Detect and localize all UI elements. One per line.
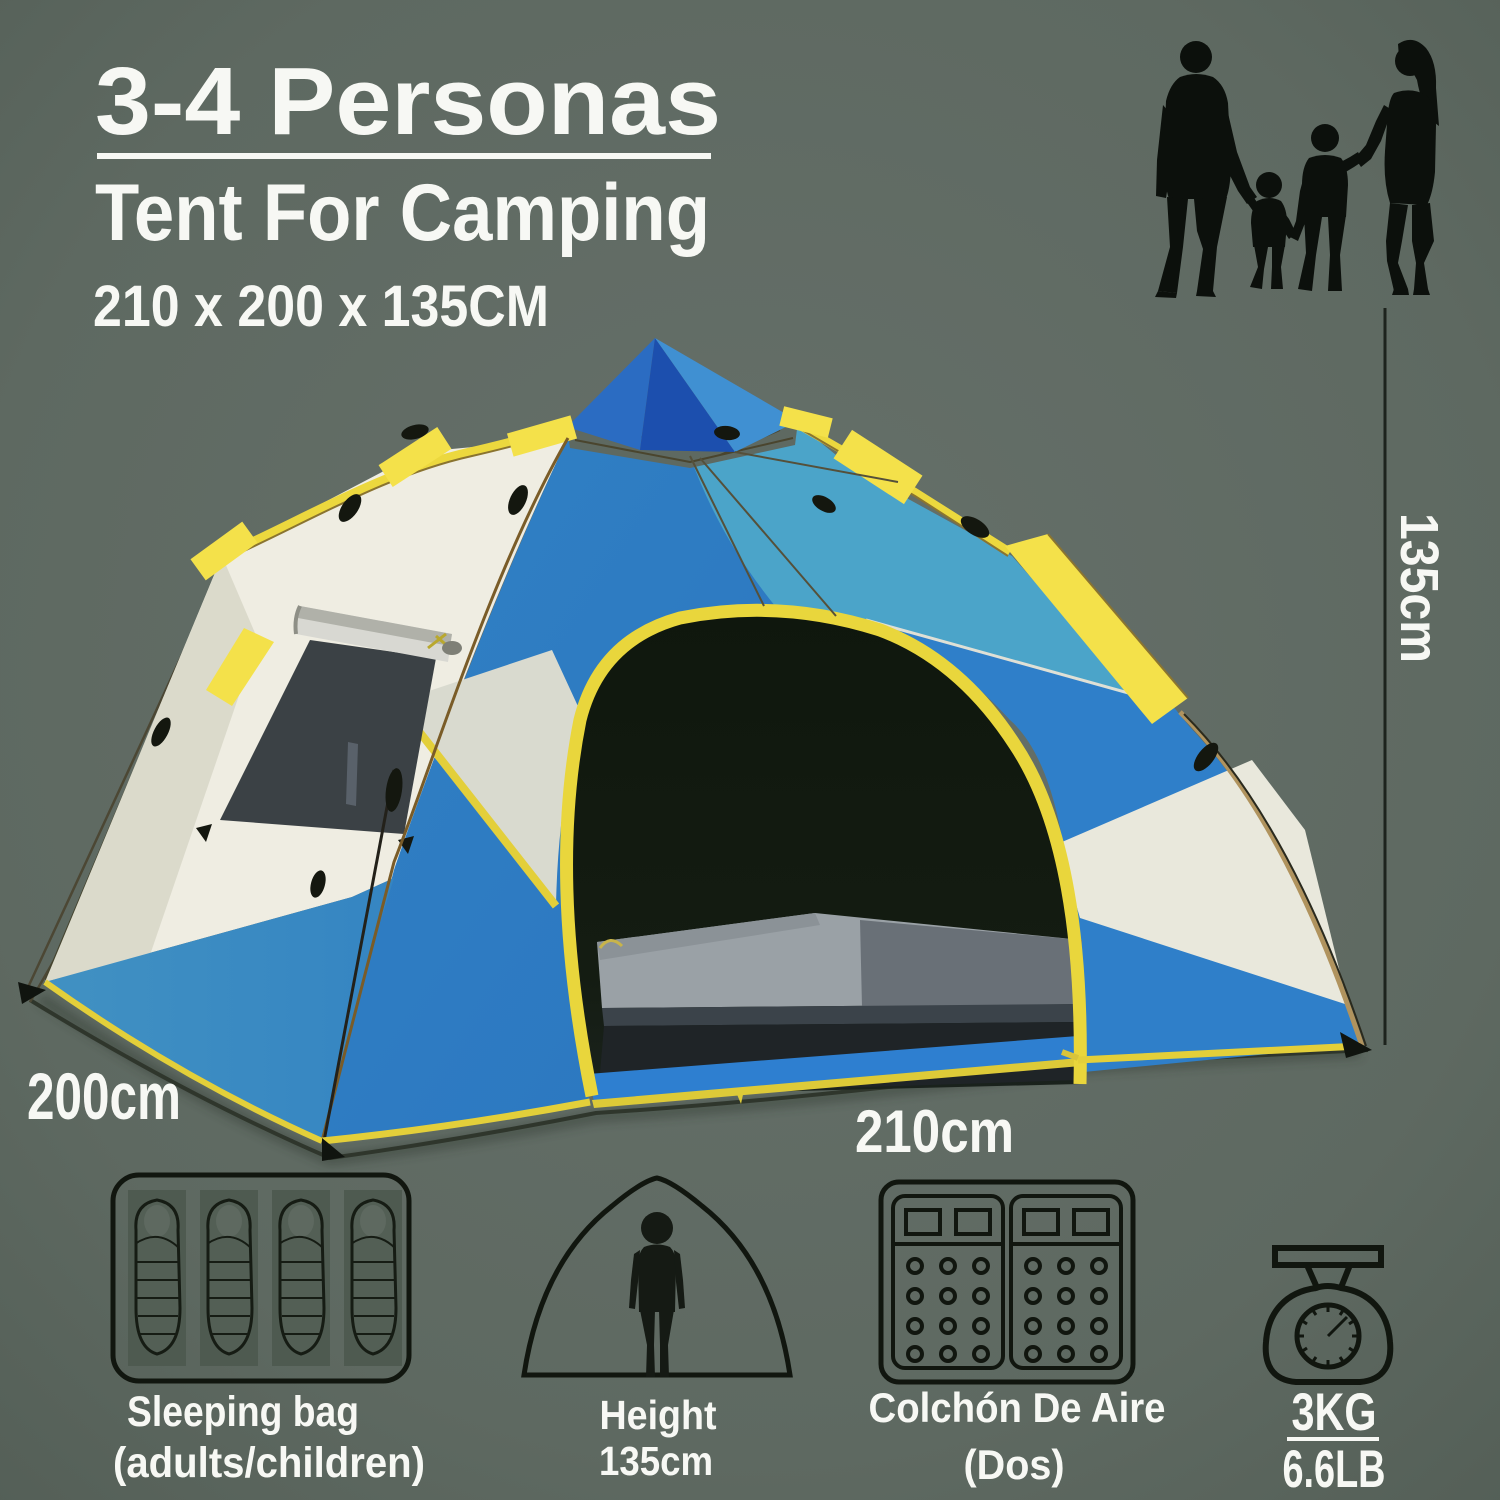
svg-text:(Dos): (Dos) (964, 1441, 1065, 1488)
svg-text:Colchón De Aire: Colchón De Aire (869, 1384, 1166, 1431)
svg-text:(adults/children): (adults/children) (113, 1439, 425, 1487)
svg-text:210cm: 210cm (855, 1098, 1014, 1165)
svg-text:3-4 Personas: 3-4 Personas (95, 48, 721, 155)
svg-text:6.6LB: 6.6LB (1283, 1440, 1386, 1499)
svg-text:Height: Height (600, 1392, 717, 1438)
svg-text:Sleeping bag: Sleeping bag (127, 1388, 359, 1436)
svg-text:135cm: 135cm (599, 1438, 713, 1484)
svg-text:135cm: 135cm (1389, 513, 1449, 663)
svg-text:3KG: 3KG (1292, 1383, 1377, 1442)
svg-text:Tent For Camping: Tent For Camping (95, 168, 710, 258)
svg-text:210 x 200 x 135CM: 210 x 200 x 135CM (93, 274, 549, 339)
svg-text:200cm: 200cm (27, 1059, 181, 1133)
